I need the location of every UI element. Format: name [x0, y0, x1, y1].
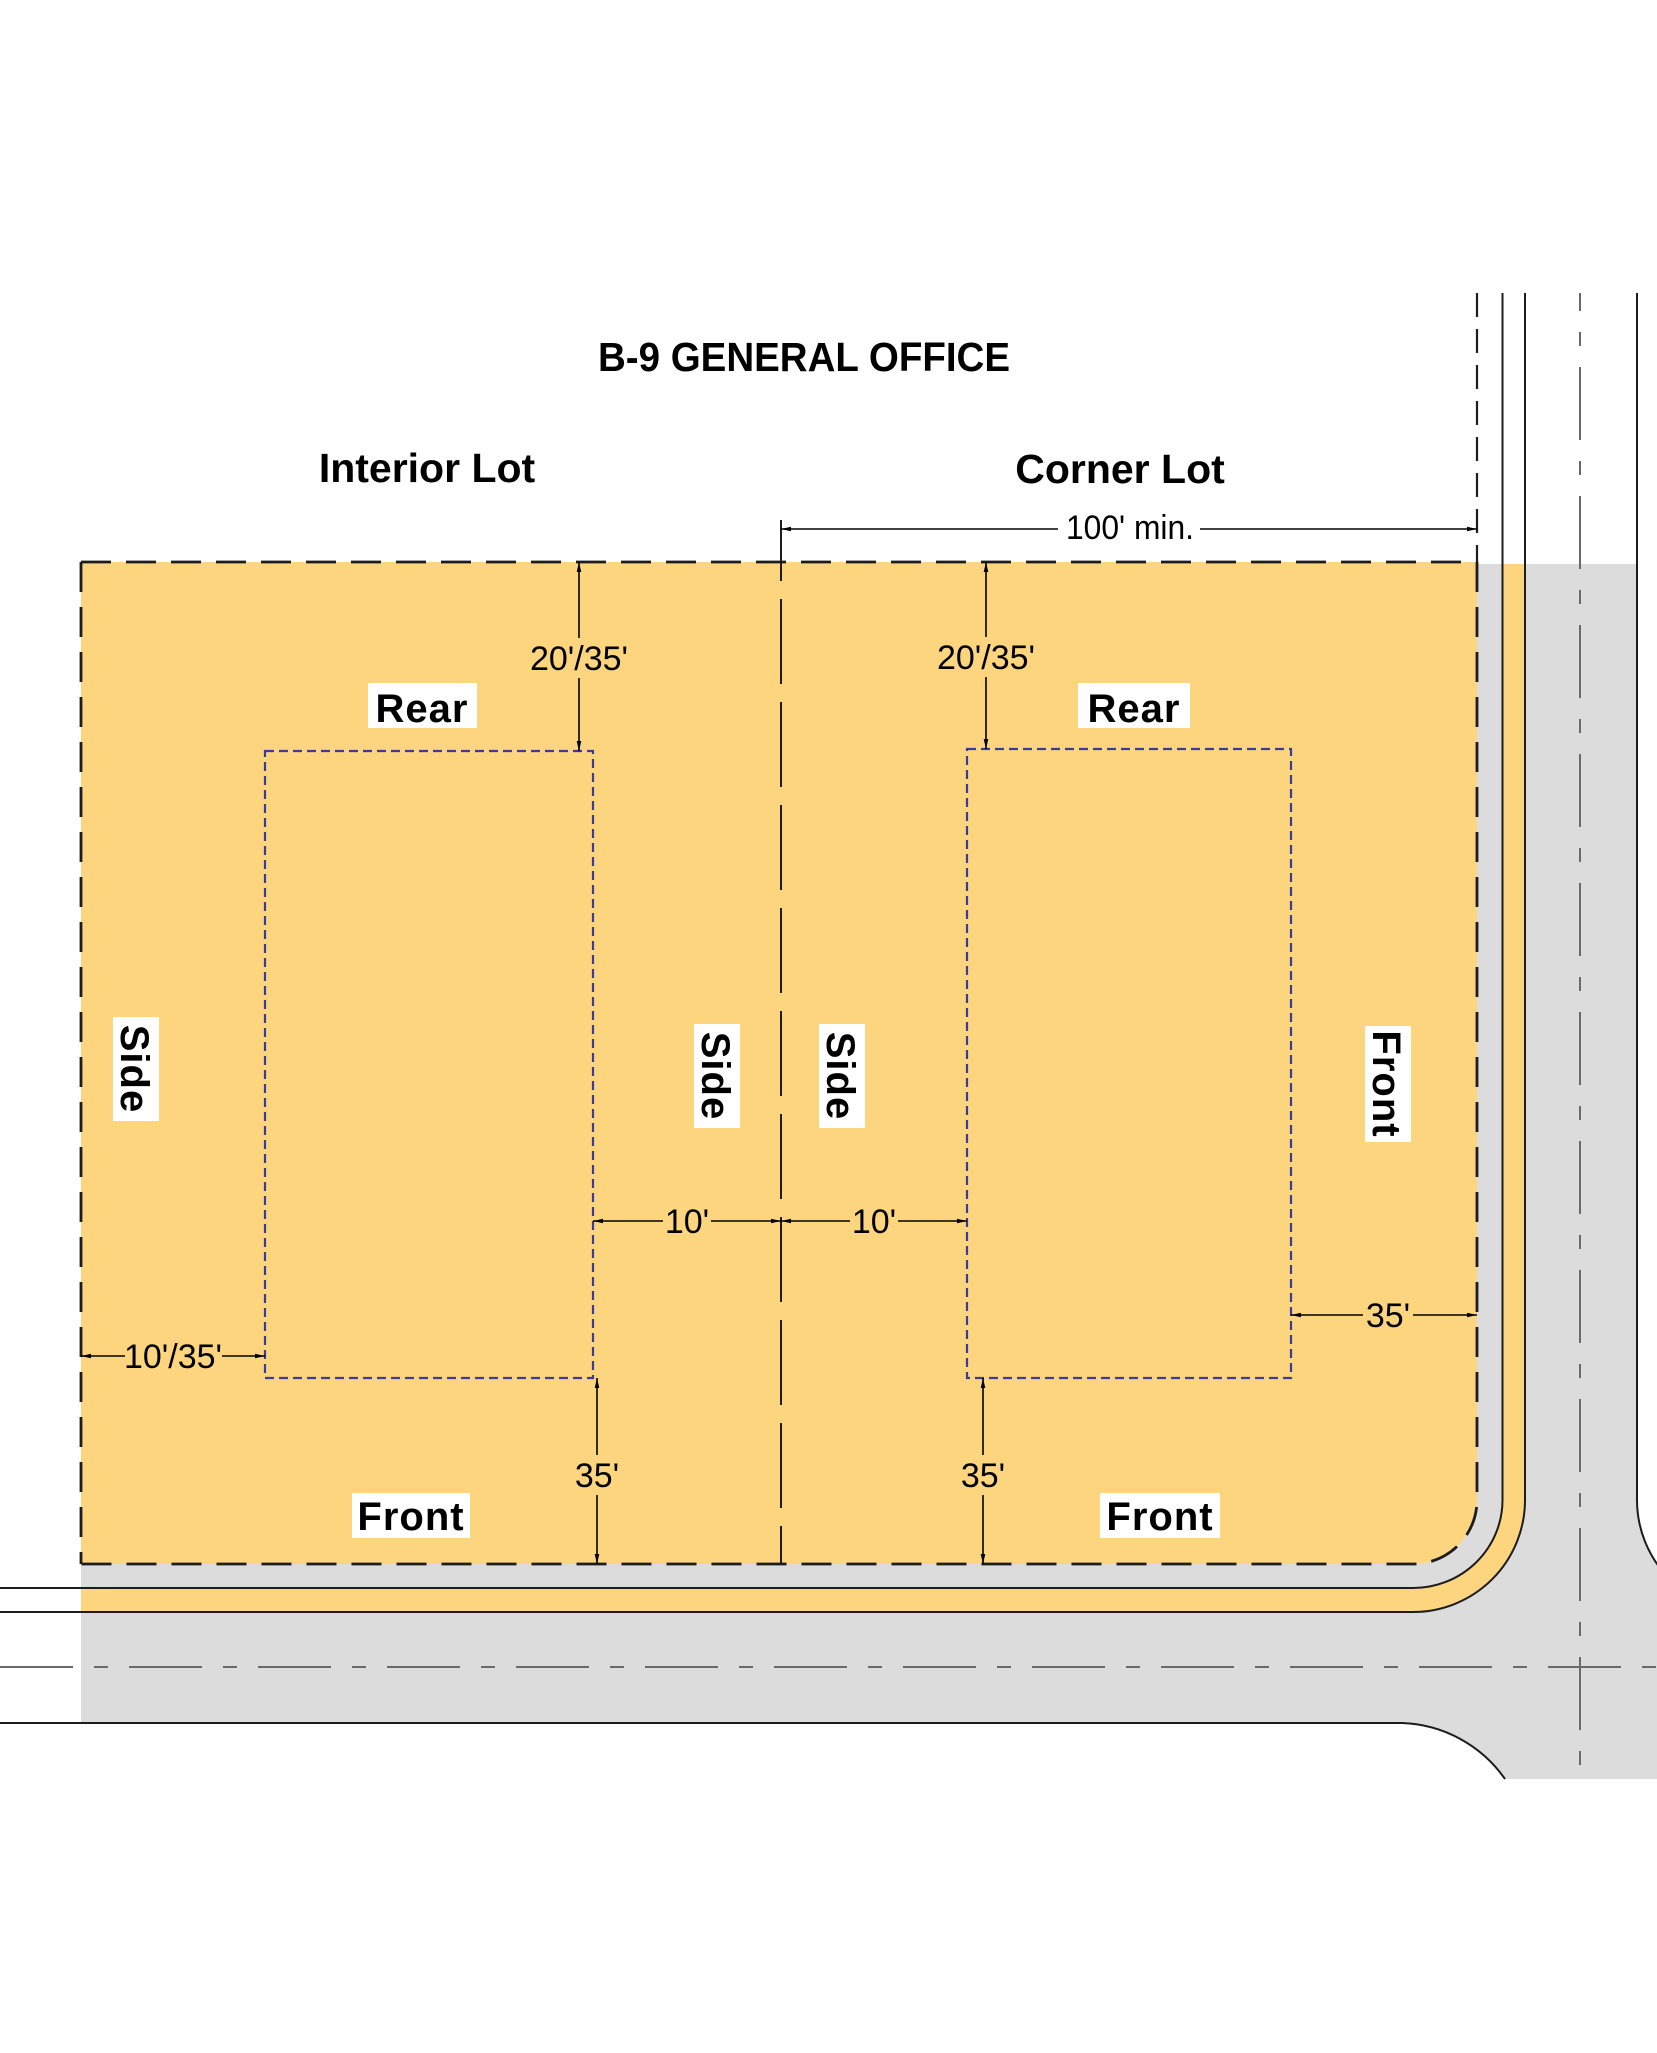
svg-text:35': 35': [575, 1457, 619, 1495]
svg-text:Interior Lot: Interior Lot: [319, 445, 536, 491]
svg-text:Corner Lot: Corner Lot: [1015, 446, 1225, 492]
svg-text:10': 10': [852, 1203, 896, 1241]
svg-text:Rear: Rear: [376, 687, 469, 731]
svg-text:Front: Front: [357, 1495, 464, 1539]
svg-text:B-9 GENERAL OFFICE: B-9 GENERAL OFFICE: [598, 334, 1010, 380]
svg-text:100' min.: 100' min.: [1066, 509, 1194, 547]
svg-text:35': 35': [961, 1457, 1005, 1495]
svg-text:Side: Side: [112, 1025, 156, 1113]
svg-text:20'/35': 20'/35': [530, 640, 628, 678]
svg-text:35': 35': [1366, 1297, 1410, 1335]
svg-text:10'/35': 10'/35': [124, 1338, 222, 1376]
svg-text:Front: Front: [1106, 1495, 1213, 1539]
svg-text:Front: Front: [1364, 1030, 1408, 1137]
svg-text:Rear: Rear: [1088, 687, 1181, 731]
svg-text:10': 10': [665, 1203, 709, 1241]
svg-text:Side: Side: [693, 1032, 737, 1120]
svg-text:Side: Side: [818, 1032, 862, 1120]
svg-text:20'/35': 20'/35': [937, 639, 1035, 677]
